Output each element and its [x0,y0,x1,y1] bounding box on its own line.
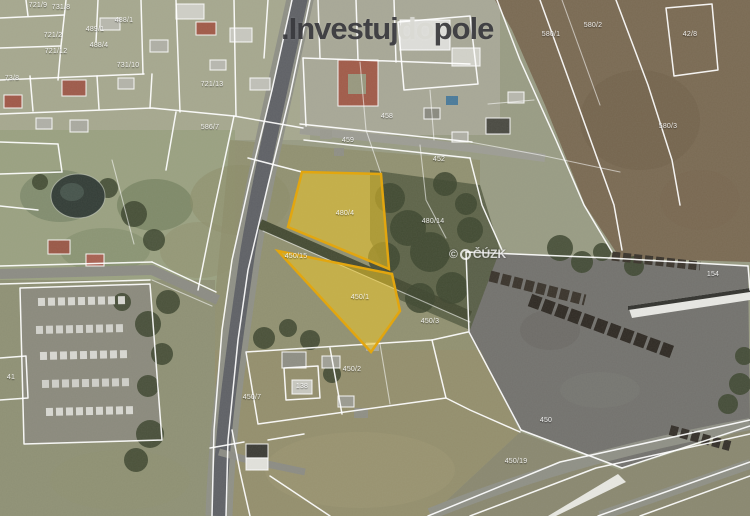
parcel-label: 41 [7,374,15,382]
parcel-label: 459 [342,137,354,145]
parcel-label: 580/3 [659,123,678,131]
parcel-label: 450/19 [505,458,528,466]
parcel-label: 731/10 [117,62,140,70]
cuzk-logo-icon [460,249,471,260]
parcel-label: 458 [381,113,393,121]
parcel-label: 580/2 [584,22,603,30]
parcel-label: 488/1 [115,17,134,25]
logo-part: pole [434,11,494,46]
parcel-label: 450/3 [421,318,440,326]
parcel-label: 450/2 [343,366,362,374]
parcel-label: 731/8 [52,4,71,12]
parcel-label: 721/2 [44,32,63,40]
parcel-label: 488/4 [90,42,109,50]
parcel-label: 480/14 [422,218,445,226]
parcel-label: 721/9 [29,2,48,10]
cuzk-watermark: © ČÚZK [449,247,506,261]
parcel-label: 138 [296,383,308,391]
parcel-label: 450/1 [351,294,370,302]
parcel-label: 721/12 [45,48,68,56]
parcel-label: 42/8 [683,31,697,39]
map-canvas: 721/9731/8488/1489/1721/2721/12488/4731/… [0,0,750,516]
parcel-label: 480/4 [336,210,355,218]
parcel-label: 450 [540,417,552,425]
logo-part: Investuj [289,11,398,46]
cuzk-org-name: ČÚZK [473,247,506,261]
parcel-label: 73/8 [5,75,19,83]
parcel-label: 154 [707,271,719,279]
parcel-label: 450/15 [285,253,308,261]
parcel-label: 450/7 [243,394,262,402]
logo-part: . [281,11,289,46]
logo-investujdopole: .Investujdopole [281,11,493,47]
parcel-label: 489/1 [86,26,105,34]
parcel-label: 452 [433,156,445,164]
logo-part: do [398,11,434,46]
copyright-symbol: © [449,247,458,261]
aerial-map[interactable] [0,0,750,516]
parcel-label: 580/1 [542,31,561,39]
parcel-label: 586/7 [201,124,220,132]
parcel-label: 721/13 [201,81,224,89]
